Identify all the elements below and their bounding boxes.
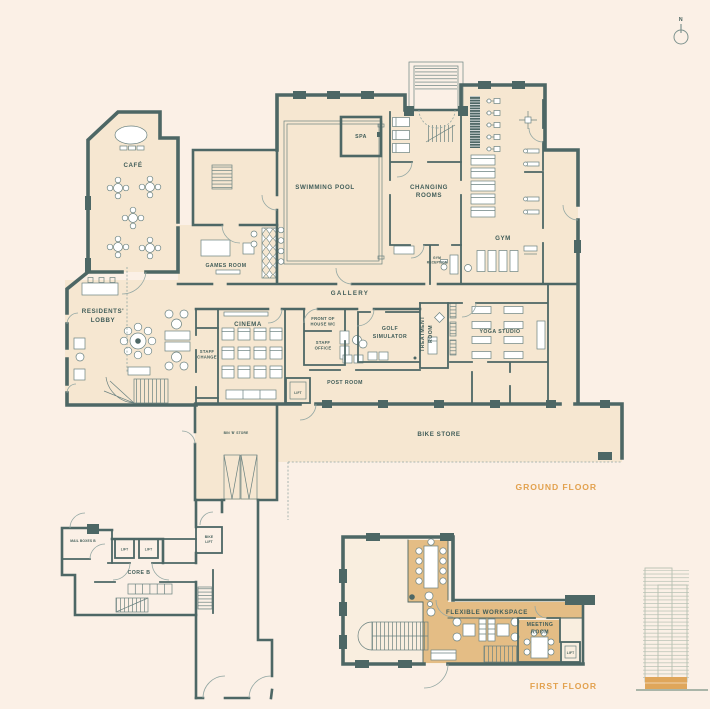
lift-label-first: LIFT [567,651,575,655]
first-floor-plan: FLEXIBLE WORKSPACE MEETING ROOM LIFT FIR… [339,533,597,691]
changing-rooms-label-2: ROOMS [416,192,442,199]
core-b-plan: MAIL BOXES B LIFT LIFT CORE B BIKE LIFT [62,500,272,698]
cafe-label: CAFÉ [123,161,142,169]
gym-reception-label-2: RECEPTION [427,261,448,265]
gallery-label: GALLERY [331,290,369,297]
treatment-room-label-1: TREATMENT [420,316,426,352]
floorplan-page: CAFÉ GAMES ROOM SPA SWIMMING POOL CHANGI… [0,0,710,709]
residents-lobby-label-1: RESIDENTS' [82,308,124,315]
meeting-room-label-2: ROOM [531,630,549,636]
ground-floor-plan: CAFÉ GAMES ROOM SPA SWIMMING POOL CHANGI… [65,62,622,520]
gym-reception-label-1: GYM [433,256,441,260]
yoga-studio-label: YOGA STUDIO [479,329,520,335]
changing-rooms-label-1: CHANGING [410,184,448,191]
north-arrow-icon: N [674,17,688,44]
staff-office-label-2: OFFICE [315,346,332,351]
gym-label: GYM [495,235,511,242]
floorplan-drawing: CAFÉ GAMES ROOM SPA SWIMMING POOL CHANGI… [0,0,710,709]
flexible-workspace-label: FLEXIBLE WORKSPACE [446,609,528,616]
north-label: N [679,17,683,23]
golf-simulator-label-1: GOLF [382,326,398,332]
cinema-label: CINEMA [234,321,262,328]
core-b-label: CORE B [128,570,151,576]
core-b-labels: MAIL BOXES B LIFT LIFT CORE B BIKE LIFT [70,535,214,576]
building-elevation-icon [636,568,708,690]
mail-boxes-label: MAIL BOXES B [70,539,96,543]
spa-label: SPA [355,134,367,140]
games-room-label: GAMES ROOM [205,263,246,269]
treatment-room-label-2: ROOM [428,325,434,343]
foh-wc-label-1: FRONT OF [311,316,335,321]
golf-simulator-label-2: SIMULATOR [373,334,407,340]
lift-label-core-1: LIFT [121,548,129,552]
meeting-room-label-1: MEETING [527,622,554,628]
bike-lift-label-2: LIFT [205,540,213,544]
first-floor-title: FIRST FLOOR [530,681,597,691]
staff-office-label-1: STAFF [316,340,331,345]
staff-change-label-1: STAFF [200,349,215,354]
ground-floor-title: GROUND FLOOR [516,482,597,492]
post-room-label: POST ROOM [327,380,363,386]
bin-store-label: BIN 'B' STORE [224,431,249,435]
swimming-pool-label: SWIMMING POOL [295,184,354,191]
residents-lobby-label-2: LOBBY [91,317,116,324]
lift-label-core-2: LIFT [145,548,153,552]
core-b-walls [62,500,272,698]
bike-store-label: BIKE STORE [417,431,460,438]
staff-change-label-2: CHANGE [197,355,217,360]
lift-label-ground: LIFT [294,391,302,395]
foh-wc-label-2: HOUSE WC [310,322,335,327]
bike-lift-label-1: BIKE [205,535,214,539]
